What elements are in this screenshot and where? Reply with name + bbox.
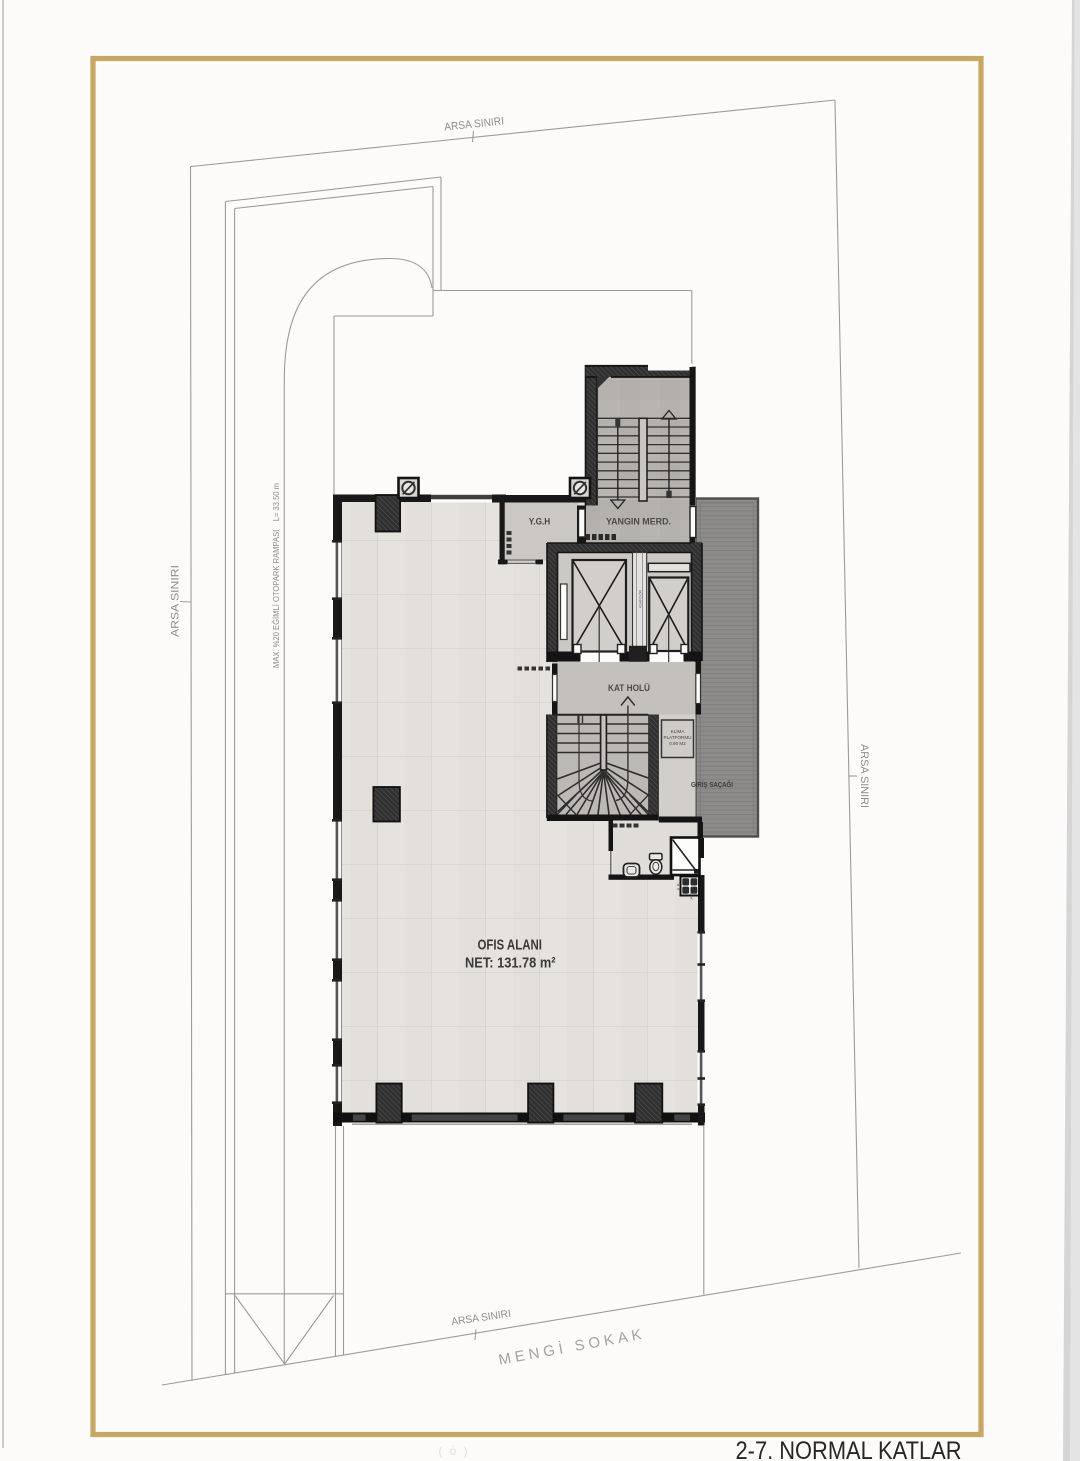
svg-text:KLİMA: KLİMA: [671, 728, 686, 734]
svg-text:Y.G.H: Y.G.H: [529, 517, 551, 527]
svg-text:GİRİŞ SAÇAĞI: GİRİŞ SAÇAĞI: [691, 780, 733, 789]
svg-text:KAT HOLÜ: KAT HOLÜ: [608, 683, 650, 694]
svg-text:ASANSÖR: ASANSÖR: [639, 589, 643, 608]
svg-text:0.90 M2: 0.90 M2: [669, 741, 686, 746]
svg-text:PLATFORMU: PLATFORMU: [664, 735, 692, 740]
svg-text:ARSA SINIRI: ARSA SINIRI: [170, 565, 182, 637]
svg-text:NET: 131.78 m²: NET: 131.78 m²: [465, 955, 556, 972]
svg-text:MAX. %20 EĞİMLİ OTOPARK RAMPAS: MAX. %20 EĞİMLİ OTOPARK RAMPASI L= 33.50…: [272, 483, 281, 668]
svg-text:OFIS ALANI: OFIS ALANI: [477, 937, 542, 954]
svg-text:2-7. NORMAL KATLAR: 2-7. NORMAL KATLAR: [736, 1437, 962, 1461]
svg-text:YANGIN MERD.: YANGIN MERD.: [606, 517, 671, 528]
svg-text:A.B: A.B: [676, 883, 681, 890]
svg-text:A.B: A.B: [689, 892, 694, 899]
svg-text:( ὁ ): ( ὁ ): [438, 1444, 469, 1458]
svg-text:ARSA SINIRI: ARSA SINIRI: [858, 744, 870, 808]
